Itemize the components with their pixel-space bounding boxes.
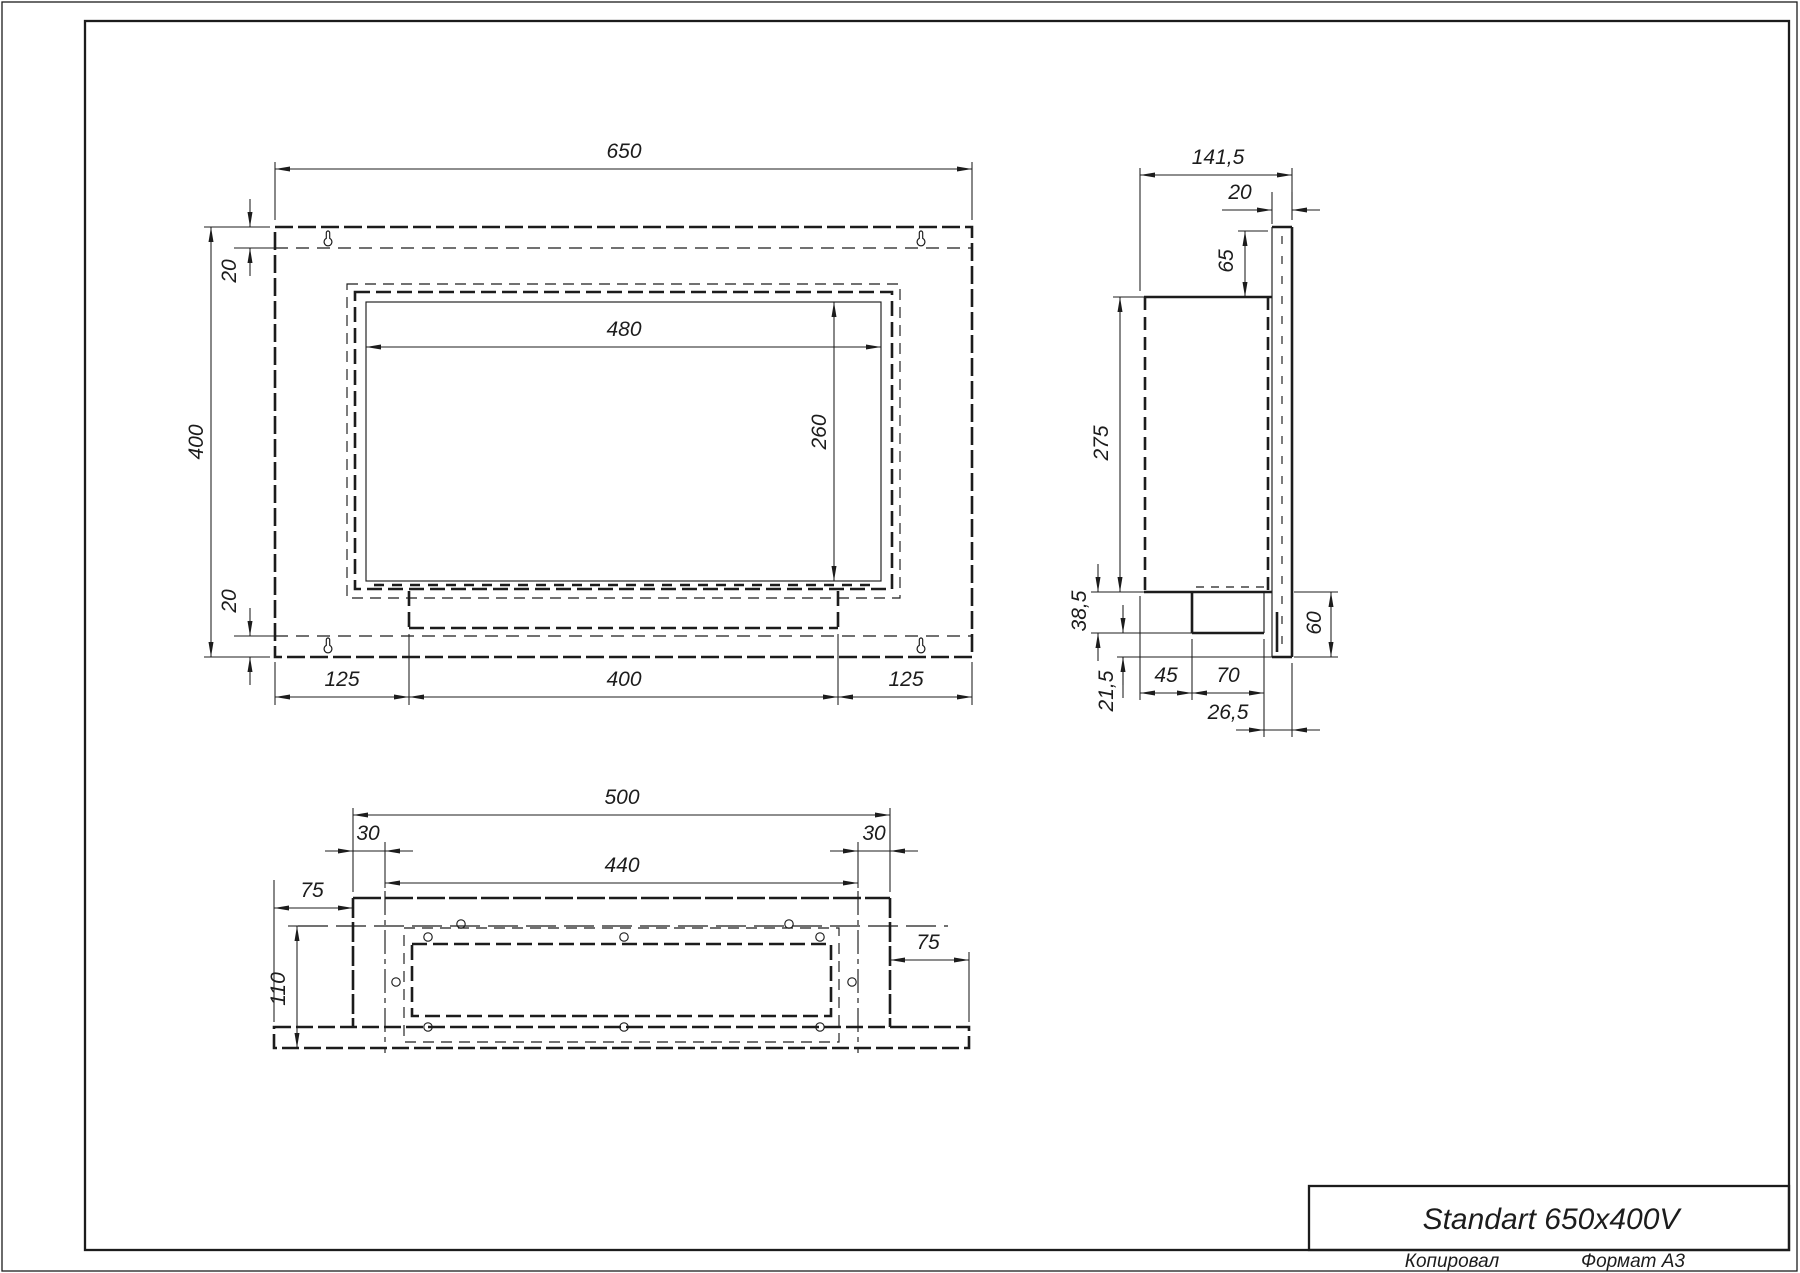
dim-label-20-side: 20 [1227, 181, 1252, 204]
dim-label-75-left: 75 [300, 879, 324, 902]
dim-bottom-inset-left: 30 [325, 822, 413, 888]
drawing-sheet: 650 400 20 20 480 [0, 0, 1800, 1273]
dim-opening-width: 480 [366, 318, 881, 347]
dim-opening-height: 260 [808, 302, 834, 581]
dim-label-30-right: 30 [862, 822, 886, 845]
dim-bottom-flange-right: 75 [890, 931, 969, 1022]
dim-side-tray-drop: 38,5 [1068, 564, 1192, 661]
dim-label-260: 260 [808, 414, 831, 450]
dim-side-tray-clearance: 21,5 [1095, 605, 1272, 712]
dim-label-26-5: 26,5 [1207, 701, 1249, 724]
dim-label-125-left: 125 [324, 668, 359, 691]
side-view: 141,5 20 65 275 38,5 [1068, 146, 1338, 737]
dim-label-65: 65 [1215, 249, 1238, 273]
dim-label-440: 440 [604, 854, 639, 877]
dim-side-flange: 20 [1222, 181, 1320, 224]
dim-label-275: 275 [1090, 425, 1113, 461]
keyhole-slot-icon [324, 638, 332, 653]
dim-label-141-5: 141,5 [1192, 146, 1245, 169]
screw-holes [392, 920, 856, 1031]
dim-side-top-offset: 65 [1215, 231, 1268, 297]
dim-label-75-right: 75 [916, 931, 940, 954]
dim-label-20-bottom: 20 [218, 589, 241, 614]
dim-label-400: 400 [185, 424, 208, 459]
dim-bottom-inner-width: 440 [385, 854, 858, 883]
dim-label-60: 60 [1303, 611, 1326, 635]
title-block: Standart 650x400V Копировал Формат А3 [1309, 1186, 1789, 1272]
dim-label-480: 480 [606, 318, 641, 341]
dim-label-21-5: 21,5 [1095, 670, 1118, 712]
footer-format-label: Формат А3 [1581, 1251, 1685, 1272]
front-view: 650 400 20 20 480 [185, 140, 972, 705]
dim-label-110: 110 [267, 972, 290, 1006]
keyhole-slot-icon [324, 231, 332, 246]
dim-label-500: 500 [604, 786, 639, 809]
dim-front-top-margin: 20 [218, 199, 277, 284]
drawing-title: Standart 650x400V [1423, 1203, 1683, 1236]
dim-side-body-height: 275 [1090, 297, 1144, 592]
dim-label-125-right: 125 [888, 668, 923, 691]
bottom-view: 500 30 30 440 75 [267, 786, 969, 1053]
dim-label-650: 650 [606, 140, 641, 163]
dim-label-38-5: 38,5 [1068, 590, 1091, 631]
dim-front-bottom-margin: 20 [218, 589, 277, 685]
keyhole-slot-icon [917, 638, 925, 653]
dim-label-45: 45 [1154, 664, 1178, 687]
dim-front-width: 650 [275, 140, 972, 220]
footer-copied-label: Копировал [1405, 1251, 1500, 1272]
keyhole-slot-icon [917, 231, 925, 246]
dim-label-70: 70 [1216, 664, 1240, 687]
dim-label-400-center: 400 [606, 668, 641, 691]
dim-bottom-inset-right: 30 [830, 822, 918, 888]
dim-label-20-top: 20 [218, 259, 241, 284]
dim-bottom-depth: 110 [267, 926, 300, 1048]
dim-front-feet: 125 400 125 [275, 634, 972, 705]
technical-drawing: 650 400 20 20 480 [0, 0, 1800, 1273]
dim-label-30-left: 30 [356, 822, 380, 845]
dim-side-bottom-offset: 60 [1294, 592, 1338, 657]
